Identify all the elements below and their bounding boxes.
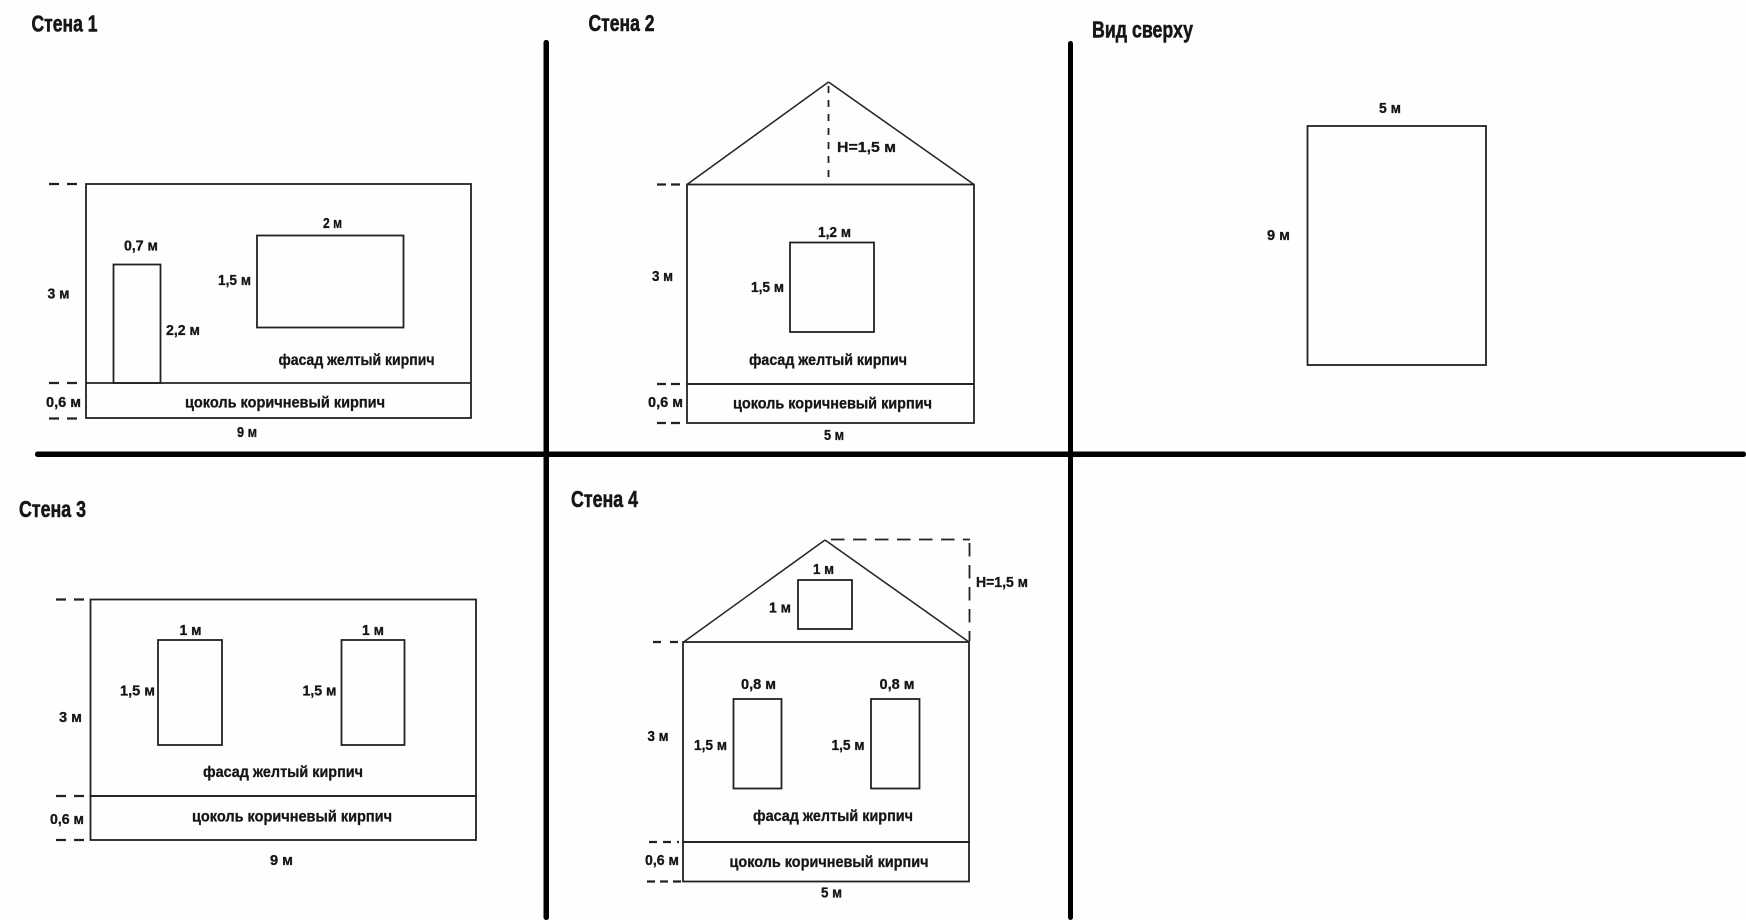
svg-text:1 м: 1 м (813, 562, 834, 578)
svg-text:1,5 м: 1,5 м (751, 280, 784, 296)
svg-text:3 м: 3 м (648, 729, 669, 745)
svg-text:1,5 м: 1,5 м (303, 684, 337, 700)
svg-text:2,2 м: 2,2 м (166, 323, 200, 339)
svg-text:0,6 м: 0,6 м (648, 395, 683, 411)
svg-text:фасад желтый кирпич: фасад желтый кирпич (279, 352, 435, 369)
svg-text:3 м: 3 м (652, 269, 673, 285)
svg-text:0,7 м: 0,7 м (124, 239, 158, 255)
svg-text:9 м: 9 м (237, 425, 257, 441)
svg-text:3 м: 3 м (48, 287, 70, 303)
svg-text:цоколь коричневый кирпич: цоколь коричневый кирпич (730, 854, 929, 871)
svg-text:3 м: 3 м (59, 710, 82, 726)
svg-text:1,5 м: 1,5 м (694, 738, 727, 754)
svg-text:1 м: 1 м (180, 623, 202, 639)
svg-text:цоколь коричневый кирпич: цоколь коричневый кирпич (733, 395, 932, 412)
svg-text:0,6 м: 0,6 м (645, 853, 679, 869)
svg-text:Стена 1: Стена 1 (32, 11, 98, 37)
svg-text:9 м: 9 м (1267, 228, 1290, 244)
svg-text:5 м: 5 м (1379, 101, 1401, 117)
svg-text:1,5 м: 1,5 м (832, 738, 865, 754)
svg-text:1,2 м: 1,2 м (818, 225, 851, 241)
svg-text:2 м: 2 м (323, 216, 342, 232)
svg-text:1,5 м: 1,5 м (218, 273, 251, 289)
svg-text:фасад желтый кирпич: фасад желтый кирпич (749, 352, 907, 369)
svg-text:H=1,5 м: H=1,5 м (976, 575, 1028, 591)
svg-text:Стена 2: Стена 2 (589, 10, 655, 36)
svg-text:1 м: 1 м (769, 601, 791, 617)
svg-text:H=1,5 м: H=1,5 м (837, 140, 896, 156)
svg-text:5 м: 5 м (821, 886, 842, 902)
svg-text:Вид сверху: Вид сверху (1092, 17, 1193, 43)
svg-text:Стена 4: Стена 4 (571, 486, 638, 512)
svg-text:цоколь коричневый кирпич: цоколь коричневый кирпич (185, 395, 385, 412)
svg-text:5 м: 5 м (824, 428, 844, 444)
svg-text:0,8 м: 0,8 м (880, 677, 915, 693)
svg-text:0,8 м: 0,8 м (741, 677, 776, 693)
svg-text:0,6 м: 0,6 м (50, 812, 84, 828)
svg-text:0,6 м: 0,6 м (46, 395, 81, 411)
svg-text:1,5 м: 1,5 м (120, 684, 155, 700)
svg-text:Стена 3: Стена 3 (19, 496, 86, 522)
svg-text:фасад желтый кирпич: фасад желтый кирпич (203, 764, 363, 781)
svg-text:1 м: 1 м (362, 623, 384, 639)
svg-text:фасад желтый кирпич: фасад желтый кирпич (753, 808, 913, 825)
svg-text:цоколь коричневый кирпич: цоколь коричневый кирпич (192, 809, 392, 826)
svg-text:9 м: 9 м (270, 853, 293, 869)
